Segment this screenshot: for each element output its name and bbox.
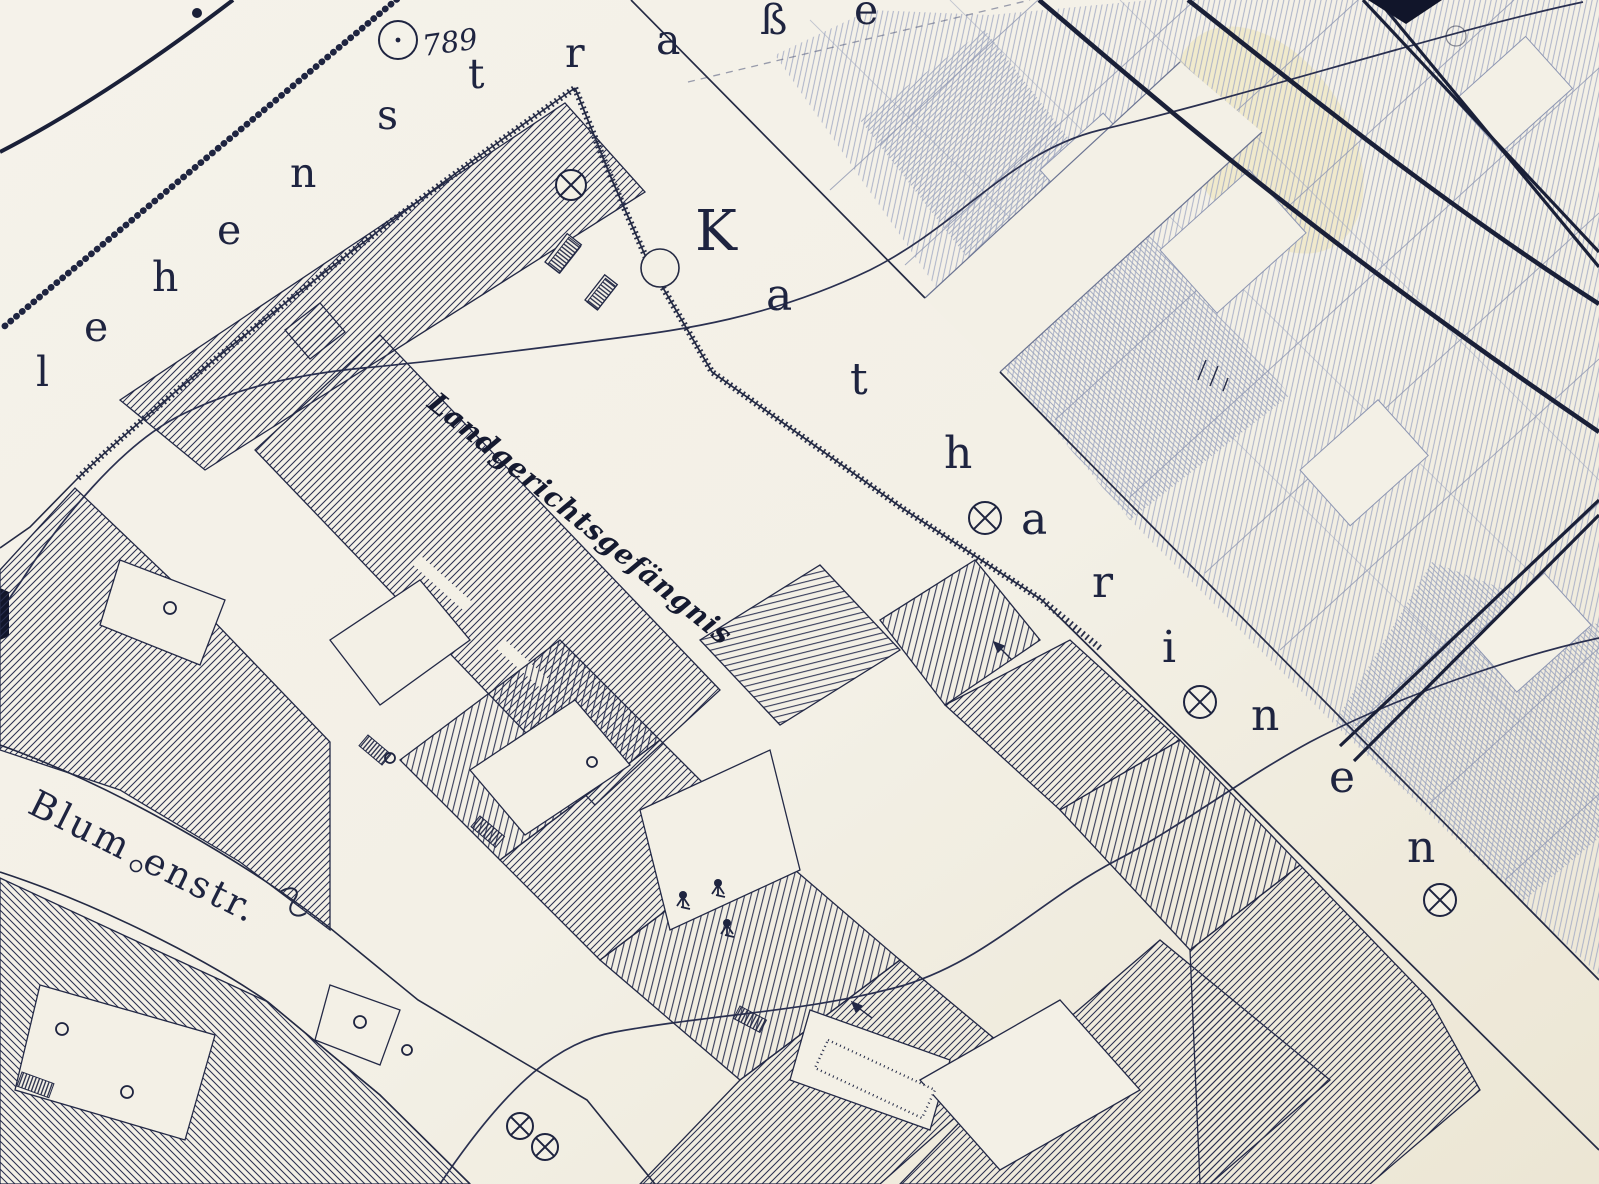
street-letter: a (766, 270, 792, 321)
street-letter: ß (760, 0, 787, 44)
street-letter: l (36, 348, 49, 396)
street-letter: a (656, 16, 680, 64)
map-canvas: 789 lehenstraße Katharinen Blumenstr. La… (0, 0, 1599, 1184)
street-letter: r (565, 29, 585, 77)
street-letter: h (152, 253, 178, 301)
wall-bastion-bump (641, 249, 679, 287)
street-letter: a (1021, 494, 1047, 545)
street-letter: t (850, 354, 868, 405)
map-scan: 789 lehenstraße Katharinen Blumenstr. La… (0, 0, 1599, 1184)
street-letter: n (1407, 822, 1435, 873)
street-letter: s (377, 91, 398, 139)
street-letter: t (468, 50, 485, 98)
street-letter: K (695, 199, 738, 264)
street-letter: i (1162, 622, 1176, 673)
street-letter: e (1329, 752, 1355, 803)
street-letter: e (217, 206, 241, 254)
street-letter: e (854, 0, 878, 34)
street-letter: n (290, 149, 316, 197)
street-letter: h (944, 428, 972, 479)
street-letter: e (84, 303, 108, 351)
street-letter: n (1251, 690, 1279, 741)
street-letter: r (1092, 557, 1114, 608)
